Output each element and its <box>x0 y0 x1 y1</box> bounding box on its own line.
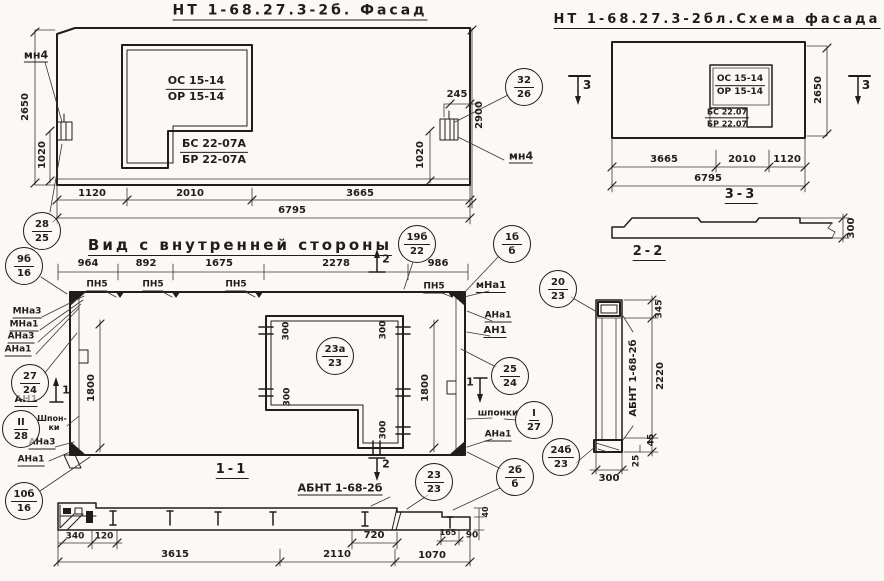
callout-28-25: 28 25 <box>23 212 61 250</box>
section-2-2-lines <box>571 296 658 474</box>
facade-dim-1020-right: 1020 <box>416 141 426 169</box>
label-ana1-right-1: АНа1 <box>485 312 512 323</box>
section-2-2-dim-300: 300 <box>599 474 620 484</box>
dim-25: 25 <box>633 455 642 468</box>
schema-title: НТ 1-68.27.3-2бл.Схема фасада <box>554 13 881 29</box>
section-2-2-panel-mark: АБНТ 1-68-2б <box>629 339 639 416</box>
callout-32-26: 32 26 <box>505 68 543 106</box>
label-shponki-right: шпонки <box>478 410 519 419</box>
callout-9b-16: 9б 16 <box>5 247 43 285</box>
facade-window-mark: ОС 15-14 ОР 15-14 <box>166 75 226 103</box>
section-1-mark-right: 1 <box>466 377 474 388</box>
facade-sill-mark: БС 22-07А БР 22-07А <box>180 138 248 166</box>
section-3-3-lines <box>612 214 849 242</box>
facade-dim-245: 245 <box>447 90 468 100</box>
inner-dim-1800-right: 1800 <box>421 374 431 402</box>
schema-window-mark: ОС 15-14 ОР 15-14 <box>715 74 765 98</box>
section-2-mark-top: 2 <box>382 254 390 265</box>
callout-24b-23: 24б 23 <box>542 438 580 476</box>
dim-1070: 1070 <box>418 551 446 561</box>
callout-I-27: I 27 <box>515 401 553 439</box>
callout-23-23: 23 23 <box>415 463 453 501</box>
anchor-label-mn4-left: мн4 <box>24 50 48 63</box>
inner-dim-986: 986 <box>428 259 449 269</box>
dim-720: 720 <box>364 531 385 541</box>
section-3-3-title: 3-3 <box>725 188 758 204</box>
pn5-label-4: ПН5 <box>423 283 444 294</box>
blueprint-sheet: НТ 1-68.27.3-2б. Фасад ОС 15-14 ОР 15-14… <box>0 0 884 581</box>
section-2-mark-bottom: 2 <box>382 459 390 470</box>
label-mna3-left: МНа3 <box>13 308 42 319</box>
label-shponki-left-1: Шпон- <box>37 415 67 423</box>
window-dim-300-3: 300 <box>284 388 293 407</box>
facade-dim-1020-left: 1020 <box>38 141 48 169</box>
label-ana1-left: АНа1 <box>5 346 32 357</box>
callout-20-23: 20 23 <box>539 270 577 308</box>
facade-dim-1120: 1120 <box>78 189 106 199</box>
dim-40: 40 <box>482 506 490 517</box>
dim-2110: 2110 <box>323 550 351 560</box>
schema-dim-6795: 6795 <box>694 174 722 184</box>
facade-dim-2010: 2010 <box>176 189 204 199</box>
callout-II-28: II 28 <box>2 410 40 448</box>
callout-23a-23: 23а 23 <box>316 337 354 375</box>
label-mna1-right: мНа1 <box>476 281 506 293</box>
dim-2220: 2220 <box>656 362 666 390</box>
window-dim-300-2: 300 <box>380 321 389 340</box>
label-shponki-left-2: ки <box>48 424 59 432</box>
label-ana1-left-bottom: АНа1 <box>18 456 45 467</box>
schema-dim-2010: 2010 <box>728 155 756 165</box>
inner-dim-2278: 2278 <box>322 259 350 269</box>
inner-dim-892: 892 <box>136 259 157 269</box>
facade-dim-2650: 2650 <box>21 93 31 121</box>
label-ana1-right-2: АНа1 <box>485 431 512 442</box>
callout-1b-b: 1б б <box>493 225 531 263</box>
inner-dim-1800-left: 1800 <box>87 374 97 402</box>
pn5-label-2: ПН5 <box>142 281 163 292</box>
section-1-1-panel-mark: АБНТ 1-68-2б <box>298 483 383 496</box>
dim-340: 340 <box>66 533 85 542</box>
facade-dim-3665: 3665 <box>346 189 374 199</box>
facade-dim-6795: 6795 <box>278 206 306 216</box>
dim-45: 45 <box>648 434 657 447</box>
window-dim-300-4: 300 <box>380 421 389 440</box>
pn5-label-1: ПН5 <box>86 281 107 292</box>
section-3-3-dim-300: 300 <box>847 218 857 239</box>
window-dim-300-1: 300 <box>283 322 292 341</box>
label-mna1-left: МНа1 <box>10 321 39 332</box>
dim-3615: 3615 <box>161 550 189 560</box>
schema-dim-3665: 3665 <box>650 155 678 165</box>
dim-120: 120 <box>95 533 114 542</box>
section-2-2-title: 2-2 <box>633 245 666 261</box>
pn5-label-3: ПН5 <box>225 281 246 292</box>
label-an1-right: АН1 <box>483 326 506 338</box>
schema-dim-1120: 1120 <box>773 155 801 165</box>
facade-dim-2900: 2900 <box>475 101 485 129</box>
anchor-label-mn4-right: мн4 <box>509 151 533 164</box>
section-1-1-title: 1-1 <box>216 463 249 479</box>
inner-view-title: Вид с внутренней стороны <box>88 238 392 256</box>
inner-dim-1675: 1675 <box>205 259 233 269</box>
section-3-mark-right: 3 <box>862 79 870 91</box>
section-1-mark-left: 1 <box>62 385 70 396</box>
schema-dim-2650: 2650 <box>814 76 824 104</box>
callout-2b-b: 2б б <box>496 458 534 496</box>
callout-25-24: 25 24 <box>491 357 529 395</box>
dim-345: 345 <box>656 300 665 319</box>
inner-dim-964: 964 <box>78 259 99 269</box>
section-3-mark-left: 3 <box>583 79 591 91</box>
callout-10b-16: 10б 16 <box>5 482 43 520</box>
callout-27-24: 27 24 <box>11 364 49 402</box>
dim-90: 90 <box>466 532 479 541</box>
facade-title: НТ 1-68.27.3-2б. Фасад <box>173 4 428 21</box>
schema-sill-mark: БС 22.07 БР 22.07 <box>705 107 749 128</box>
dim-165: 165 <box>440 529 457 537</box>
callout-19b-22: 19б 22 <box>398 225 436 263</box>
label-ana3-left: АНа3 <box>8 333 35 344</box>
